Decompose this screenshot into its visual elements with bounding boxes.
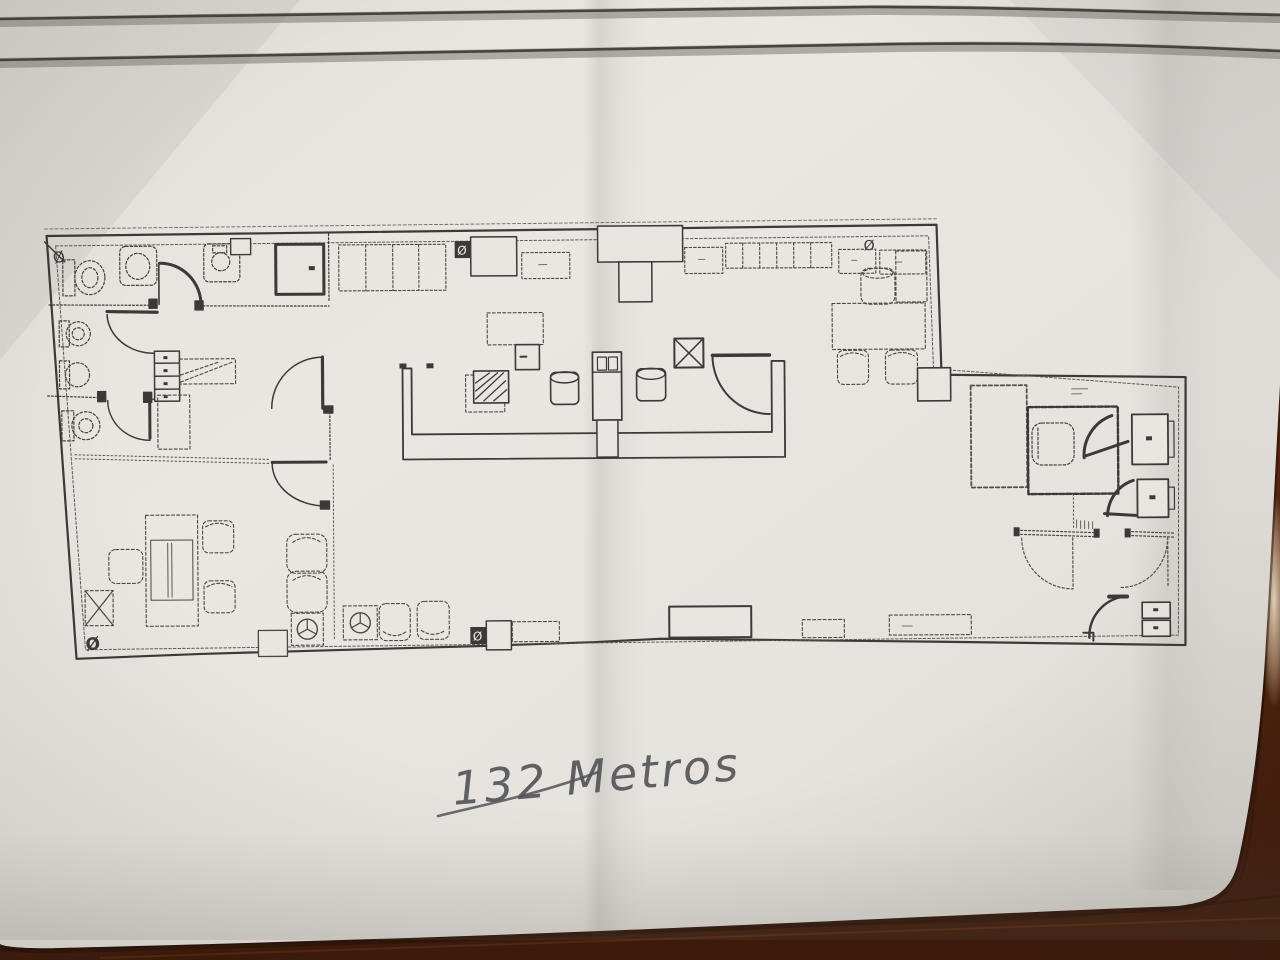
photo-of-floor-plan-on-table: 132 Metros xyxy=(0,0,1280,960)
photo-vignette xyxy=(0,0,1280,960)
floor-plan-photo: Ø Ø Ø xyxy=(0,0,1280,960)
